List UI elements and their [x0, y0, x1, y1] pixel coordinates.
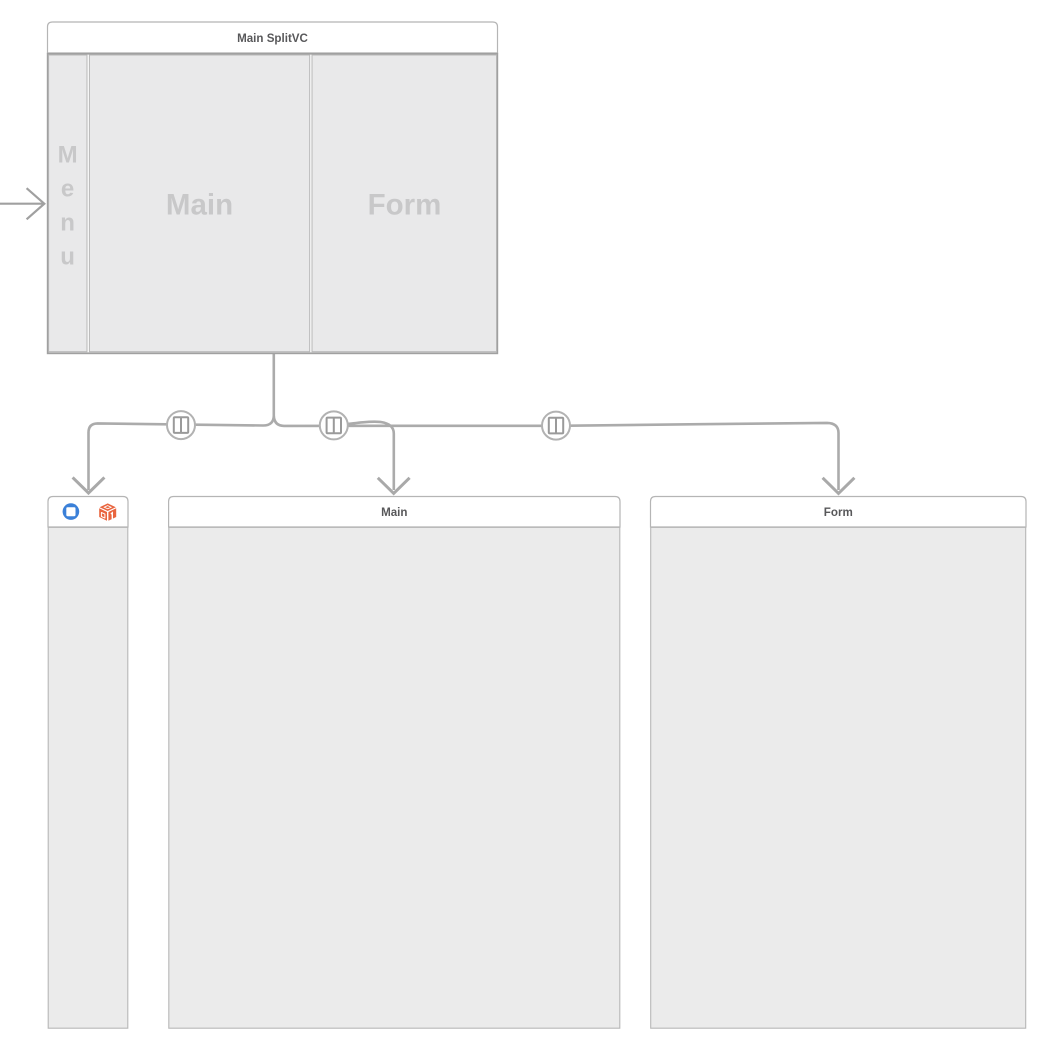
svg-text:Form: Form [368, 189, 442, 222]
svg-text:e: e [61, 176, 74, 203]
svg-text:Main SplitVC: Main SplitVC [237, 32, 308, 45]
svg-text:u: u [60, 244, 75, 271]
svg-text:M: M [58, 142, 78, 169]
svg-text:Main: Main [381, 506, 407, 519]
svg-text:Form: Form [824, 506, 853, 519]
svg-text:n: n [60, 210, 75, 237]
svg-text:Main: Main [166, 189, 233, 222]
